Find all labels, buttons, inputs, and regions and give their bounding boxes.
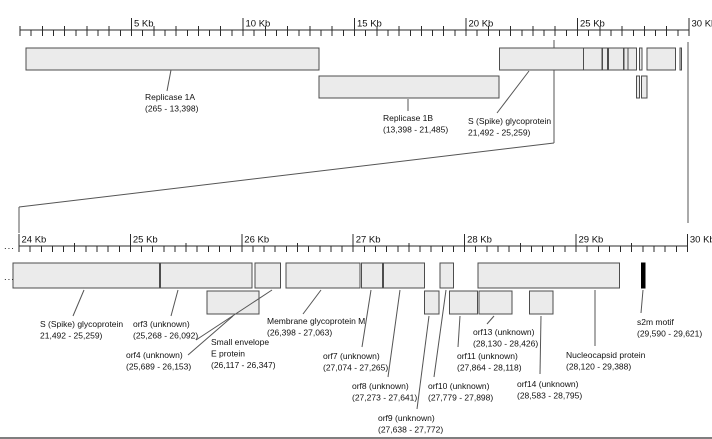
feature-label-text: orf4 (unknown)	[126, 350, 183, 360]
feature-label-text: (25,689 - 26,153)	[126, 362, 191, 372]
top-overview-box-spike	[499, 48, 583, 70]
label-leader-line	[458, 316, 460, 347]
top-overview-ruler-label: 10 Kb	[246, 19, 271, 30]
label-leader-line	[540, 316, 541, 374]
feature-label-text: (27,779 - 27,898)	[428, 393, 493, 403]
feature-label-text: orf9 (unknown)	[378, 413, 435, 423]
bottom-detail-label-spike: S (Spike) glycoprotein21,492 - 25,259)	[40, 290, 123, 341]
feature-label-text: Replicase 1B	[383, 113, 433, 123]
feature-label-text: (28,583 - 28,795)	[517, 391, 582, 401]
label-leader-line	[303, 290, 321, 314]
label-leader-line	[73, 290, 84, 316]
label-leader-line	[167, 70, 171, 91]
bottom-detail-ruler-label: 26 Kb	[244, 235, 269, 246]
feature-label-text: 21,492 - 25,259)	[468, 128, 531, 138]
top-overview-box-m	[609, 48, 624, 70]
bottom-detail-box-s2m	[642, 263, 646, 288]
bottom-detail-ruler-label: 27 Kb	[356, 235, 381, 246]
feature-label-text: 21,492 - 25,259)	[40, 331, 103, 341]
top-overview-ruler-label: 20 Kb	[469, 19, 494, 30]
feature-label-text: Replicase 1A	[145, 92, 195, 102]
feature-label-text: (27,638 - 27,772)	[378, 425, 443, 435]
feature-label-text: orf8 (unknown)	[352, 381, 409, 391]
top-overview-box-orf7	[624, 48, 628, 70]
feature-label-text: orf11 (unknown)	[457, 351, 518, 361]
bottom-detail-box-orf9	[424, 291, 439, 314]
feature-label-text: Membrane glycoprotein M	[267, 316, 365, 326]
top-overview-box-orf3	[584, 48, 602, 70]
bottom-detail-box-spike	[13, 263, 159, 288]
feature-label-text: (29,590 - 29,621)	[637, 329, 702, 339]
feature-label-text: (28,130 - 28,426)	[473, 339, 538, 349]
bottom-detail-features	[13, 263, 645, 314]
bottom-detail-box-orf13	[479, 291, 512, 314]
feature-label-text: (26,398 - 27,063)	[267, 328, 332, 338]
bottom-detail-box-n	[478, 263, 619, 288]
top-overview-box-orf8	[628, 48, 636, 70]
genome-map-figure: 5 Kb10 Kb15 Kb20 Kb25 Kb30 Kb24 Kb25 Kb2…	[0, 0, 712, 439]
bottom-detail-box-orf7	[361, 263, 382, 288]
feature-label-text: orf7 (unknown)	[323, 351, 380, 361]
top-overview-ruler-label: 30 Kb	[692, 19, 712, 30]
top-overview-label-rep1a: Replicase 1A(265 - 13,398)	[145, 70, 199, 114]
bottom-detail-ruler-label: 28 Kb	[467, 235, 492, 246]
top-overview-ruler: 5 Kb10 Kb15 Kb20 Kb25 Kb30 Kb	[20, 18, 712, 36]
feature-label-text: s2m motif	[637, 317, 674, 327]
bottom-detail-box-orf14	[530, 291, 554, 314]
bottom-detail-box-orf10	[440, 263, 453, 288]
feature-label-text: orf10 (unknown)	[428, 381, 490, 391]
zoom-connector-line	[19, 143, 554, 207]
bottom-detail-label-s2m: s2m motif(29,590 - 29,621)	[637, 290, 702, 339]
label-leader-line	[388, 290, 400, 377]
genome-map-canvas: 5 Kb10 Kb15 Kb20 Kb25 Kb30 Kb24 Kb25 Kb2…	[0, 0, 712, 439]
top-overview-box-n	[647, 48, 675, 70]
bottom-detail-label-orf7: orf7 (unknown)(27,074 - 27,265)	[323, 290, 388, 373]
bottom-detail-box-e	[255, 263, 281, 288]
top-overview-features	[26, 48, 681, 98]
sequence-continuation-ellipsis: ...	[4, 241, 15, 252]
feature-label-text: (27,074 - 27,265)	[323, 363, 388, 373]
bottom-detail-label-n: Nucleocapsid protein(28,120 - 29,388)	[566, 290, 646, 372]
feature-label-text: (265 - 13,398)	[145, 104, 199, 114]
bottom-detail-ruler-label: 25 Kb	[133, 235, 158, 246]
label-leader-line	[171, 290, 178, 316]
feature-label-text: Small envelope	[211, 337, 269, 347]
feature-label-text: (25,268 - 26,092)	[133, 331, 198, 341]
bottom-detail-box-orf11	[449, 291, 477, 314]
bottom-detail-box-orf8	[384, 263, 425, 288]
feature-label-text: (26,117 - 26,347)	[211, 360, 276, 370]
bottom-detail-label-m: Membrane glycoprotein M(26,398 - 27,063)	[267, 290, 365, 338]
feature-label-text: orf3 (unknown)	[133, 319, 190, 329]
top-overview-box-orf10	[640, 48, 643, 70]
top-overview-box-rep1b	[319, 76, 499, 98]
label-leader-line	[641, 290, 643, 313]
bottom-detail-ruler: 24 Kb25 Kb26 Kb27 Kb28 Kb29 Kb30 Kb	[19, 234, 712, 252]
top-overview-ruler-label: 25 Kb	[580, 19, 605, 30]
feature-label-text: (27,864 - 28,118)	[457, 363, 522, 373]
top-overview-label-rep1b: Replicase 1B(13,398 - 21,485)	[383, 99, 448, 135]
feature-label-text: S (Spike) glycoprotein	[40, 319, 123, 329]
top-overview-box-orf9	[636, 76, 639, 98]
top-overview-ruler-label: 15 Kb	[357, 19, 382, 30]
top-overview-box-orf11	[641, 76, 647, 98]
bottom-detail-label-orf3: orf3 (unknown)(25,268 - 26,092)	[133, 290, 198, 341]
feature-label-text: S (Spike) glycoprotein	[468, 116, 551, 126]
bottom-detail-box-orf3	[160, 263, 252, 288]
bottom-detail-labels: S (Spike) glycoprotein21,492 - 25,259)or…	[40, 290, 702, 435]
top-overview-box-s2m	[680, 48, 681, 70]
feature-label-text: E protein	[211, 349, 245, 359]
bottom-detail-ruler-label: 24 Kb	[22, 235, 47, 246]
feature-label-text: (13,398 - 21,485)	[383, 125, 448, 135]
top-overview-box-rep1a	[26, 48, 319, 70]
feature-label-text: orf13 (unknown)	[473, 327, 535, 337]
feature-label-text: (28,120 - 29,388)	[566, 362, 631, 372]
top-overview-ruler-label: 5 Kb	[134, 19, 154, 30]
bottom-detail-ruler-label: 29 Kb	[579, 235, 604, 246]
bottom-detail-box-m	[286, 263, 360, 288]
label-leader-line	[487, 316, 494, 324]
label-leader-line	[497, 71, 529, 113]
sequence-continuation-ellipsis: ...	[4, 272, 15, 283]
bottom-detail-box-orf4	[207, 291, 259, 314]
bottom-detail-ruler-label: 30 Kb	[690, 235, 712, 246]
top-overview-box-e	[602, 48, 607, 70]
feature-label-text: orf14 (unknown)	[517, 379, 579, 389]
feature-label-text: (27,273 - 27,641)	[352, 393, 417, 403]
feature-label-text: Nucleocapsid protein	[566, 350, 646, 360]
bottom-detail-label-orf13: orf13 (unknown)(28,130 - 28,426)	[473, 316, 538, 349]
